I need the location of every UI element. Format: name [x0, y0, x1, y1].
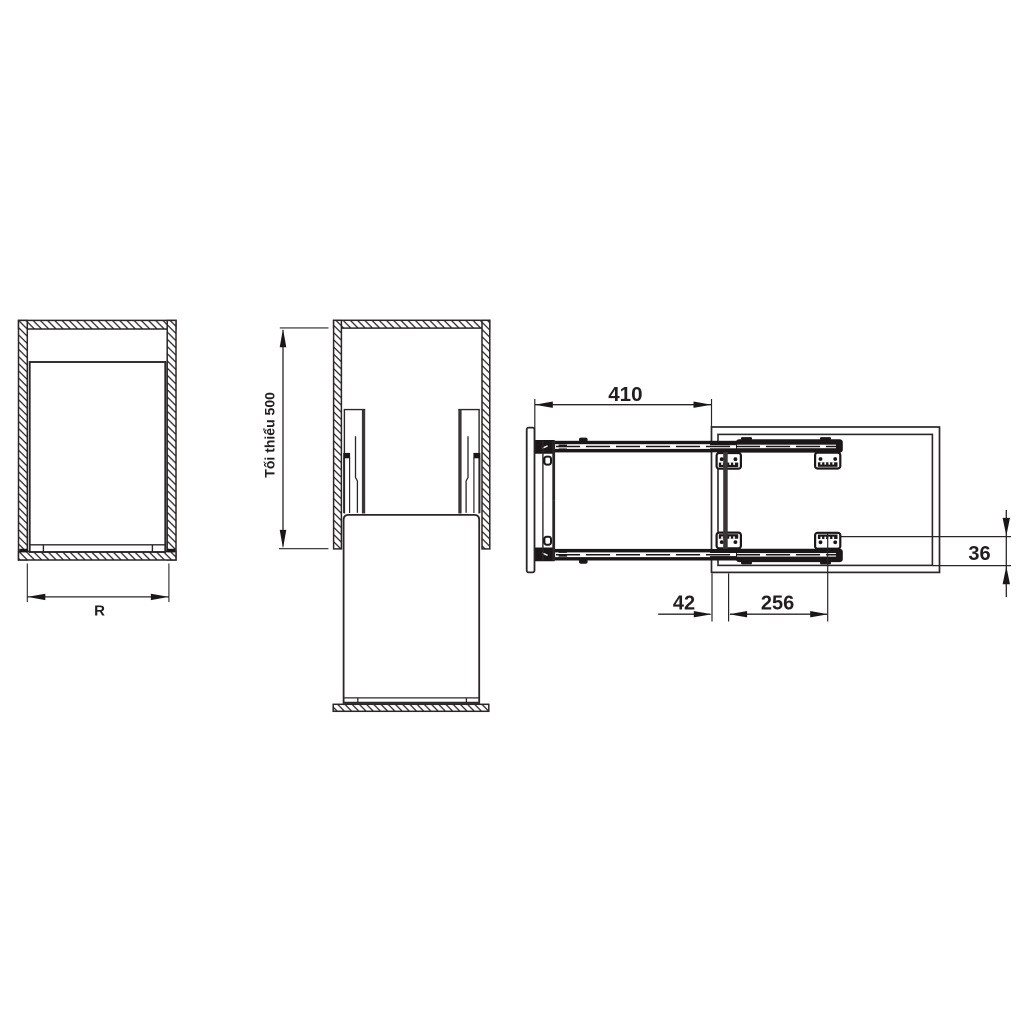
- svg-text:R: R: [94, 602, 105, 619]
- svg-text:36: 36: [968, 543, 990, 565]
- svg-text:410: 410: [608, 383, 642, 406]
- svg-text:42: 42: [673, 593, 695, 615]
- svg-text:256: 256: [761, 593, 794, 615]
- svg-text:Tối thiểu 500: Tối thiểu 500: [261, 392, 277, 478]
